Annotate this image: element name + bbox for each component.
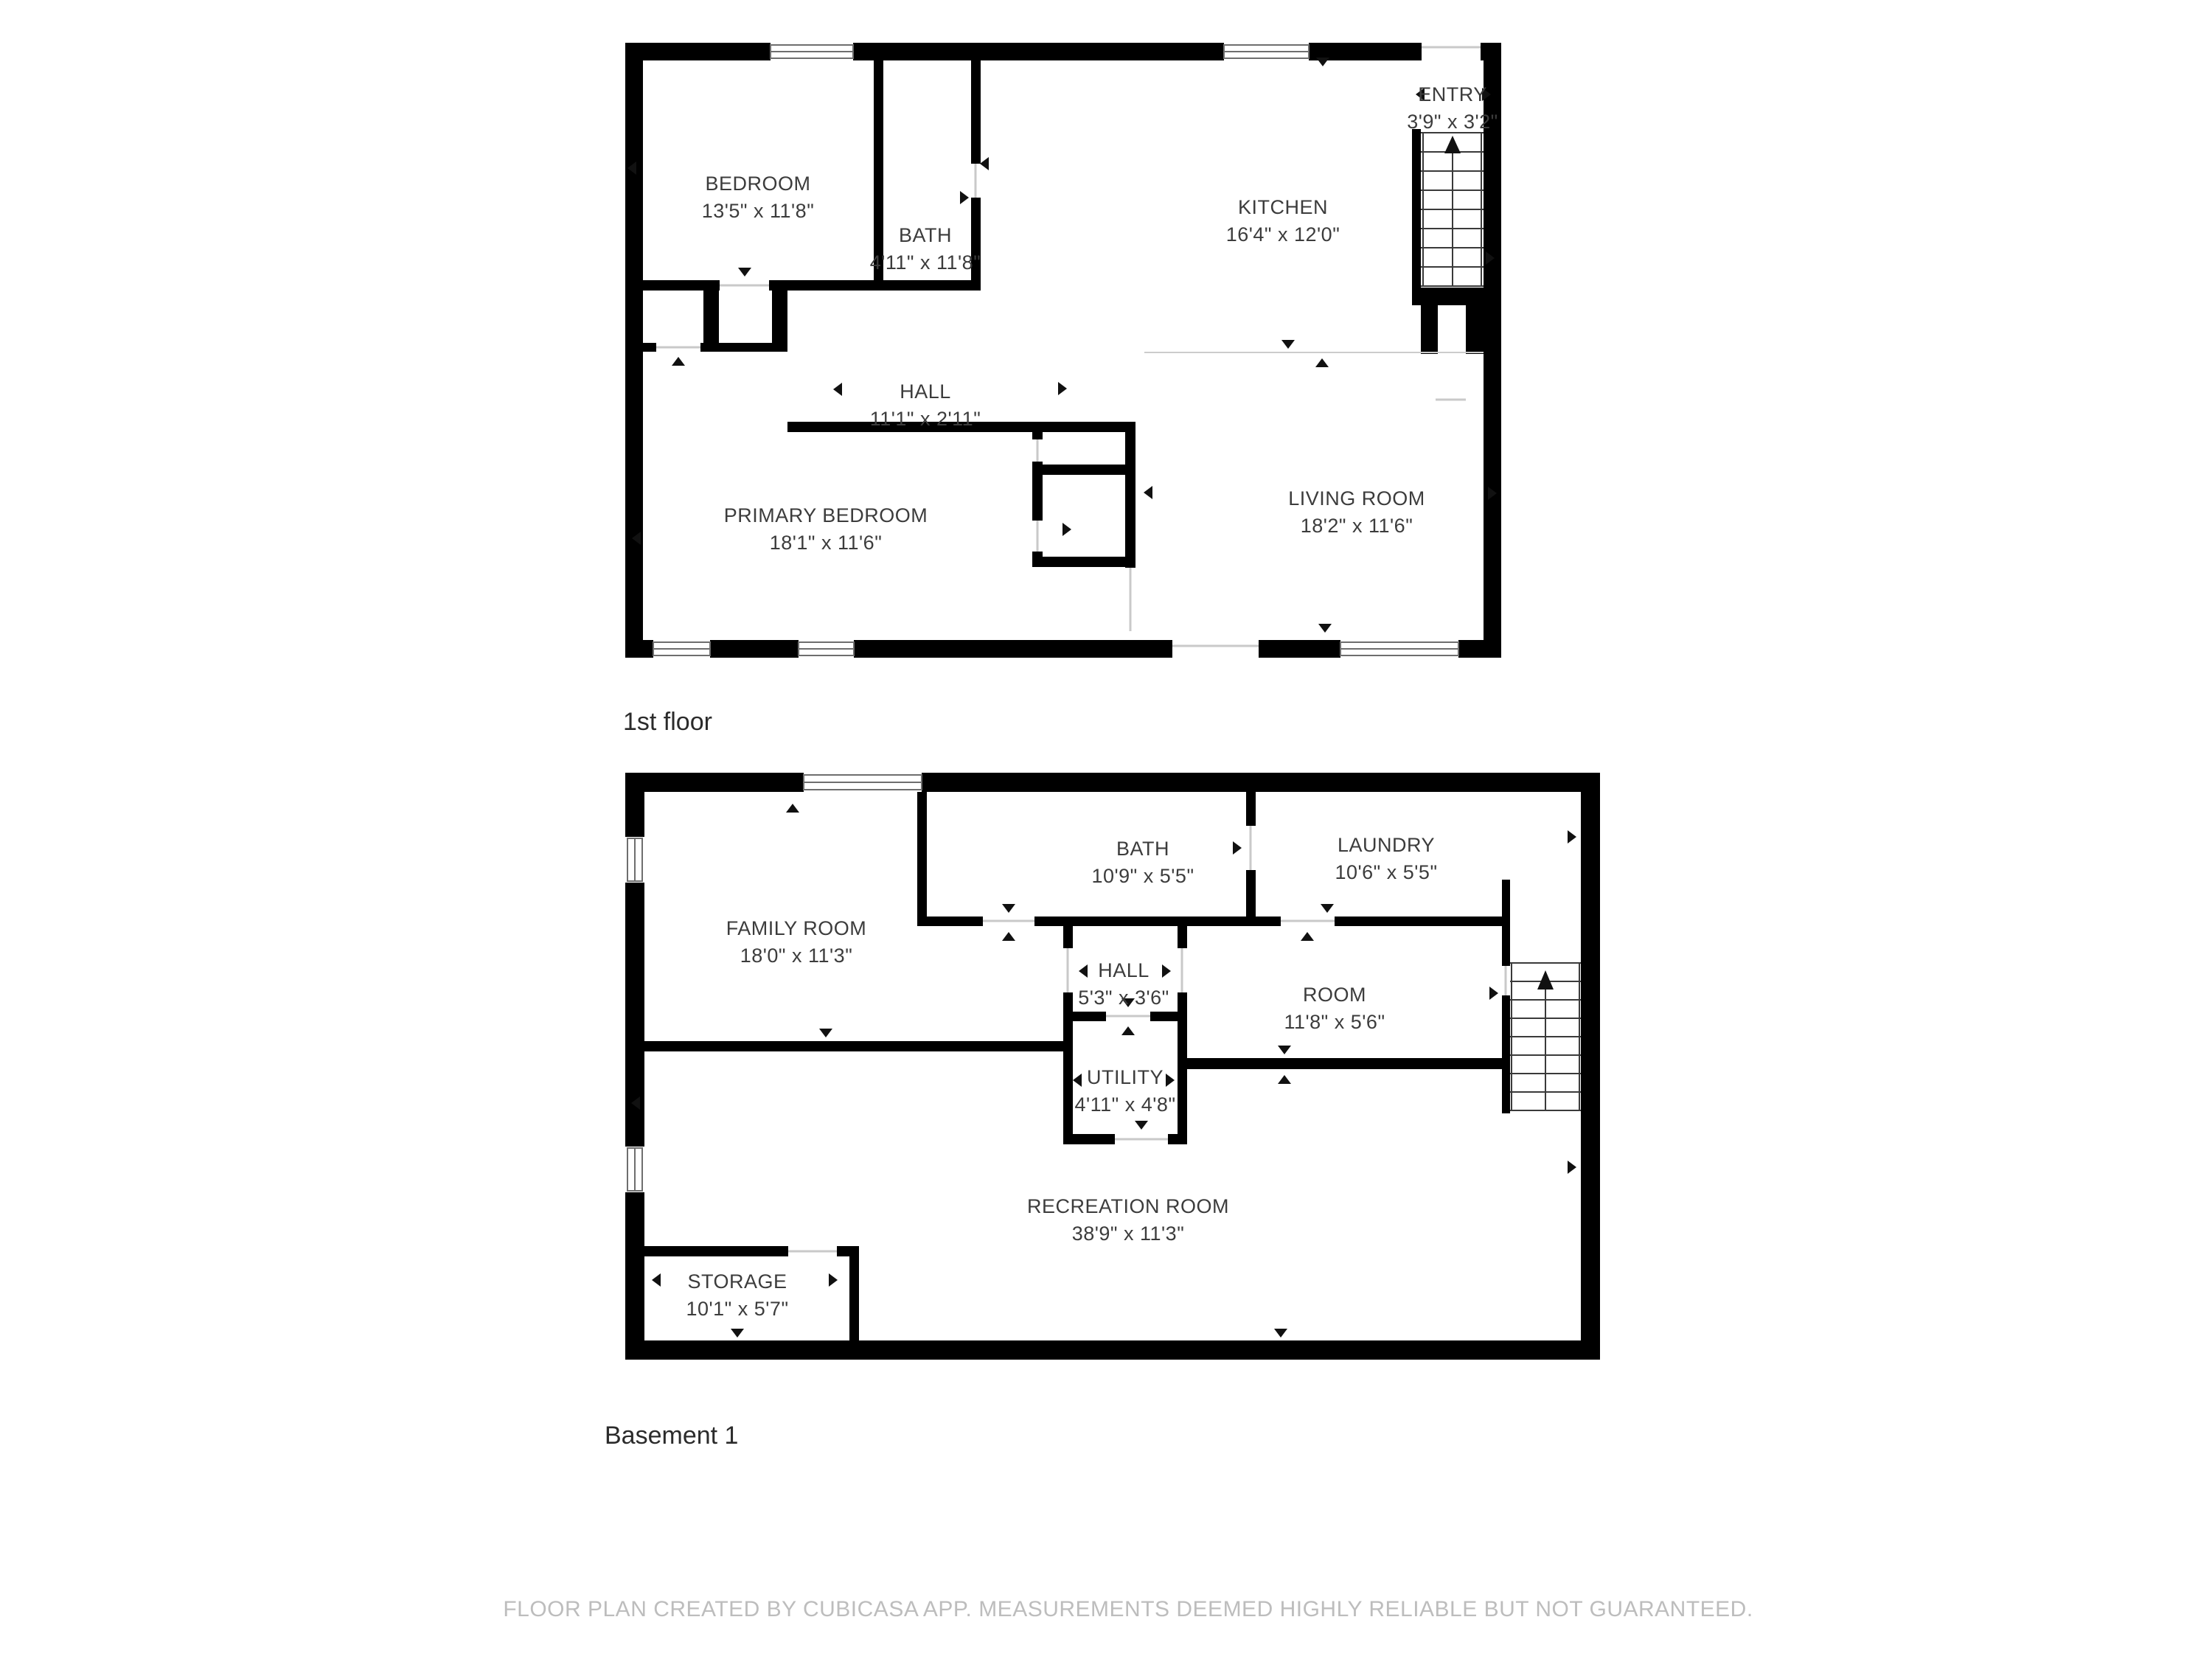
first-floor-label: 1st floor: [623, 708, 712, 736]
room-dims-utility: 4'11" x 4'8": [1074, 1093, 1175, 1116]
room-dims-living-room: 18'2" x 11'6": [1301, 515, 1413, 537]
room-label-basement-bath: BATH: [1116, 838, 1169, 860]
room-dims-storage: 10'1" x 5'7": [686, 1298, 788, 1320]
basement-stairs: [1510, 963, 1581, 1110]
room-dims-basement-bath: 10'9" x 5'5": [1091, 865, 1194, 887]
room-dims-recreation-room: 38'9" x 11'3": [1072, 1222, 1185, 1245]
room-label-entry: ENTRY: [1418, 83, 1487, 105]
basement-openings: [788, 826, 1506, 1251]
door-arrow-icon: [738, 268, 751, 276]
door-arrow-icon: [1318, 624, 1332, 633]
door-arrow-icon: [652, 1273, 661, 1287]
door-arrow-icon: [1166, 1074, 1175, 1087]
room-label-laundry: LAUNDRY: [1338, 834, 1435, 856]
room-label-recreation-room: RECREATION ROOM: [1027, 1195, 1229, 1217]
door-arrow-icon: [1002, 904, 1015, 913]
door-arrow-icon: [786, 804, 799, 813]
door-arrow-icon: [1315, 358, 1329, 367]
room-label-room: ROOM: [1303, 984, 1366, 1006]
door-arrow-icon: [672, 357, 685, 366]
first-floor-plan: BEDROOM 13'5" x 11'8" BATH 4'11" x 11'8"…: [625, 43, 1501, 658]
door-arrow-icon: [819, 1029, 832, 1037]
door-arrow-icon: [1079, 964, 1088, 978]
basement-floor-label: Basement 1: [605, 1422, 738, 1450]
door-arrow-icon: [1144, 486, 1152, 499]
door-arrow-icon: [1062, 523, 1071, 536]
first-floor-stairs: [1421, 133, 1484, 286]
room-label-primary-bedroom: PRIMARY BEDROOM: [724, 504, 928, 526]
room-dims-entry: 3'9" x 3'2": [1407, 111, 1498, 133]
door-arrow-icon: [833, 383, 842, 396]
door-arrow-icon: [1121, 1026, 1135, 1035]
door-arrow-icon: [1278, 1075, 1291, 1084]
room-dims-room: 11'8" x 5'6": [1284, 1011, 1385, 1033]
door-arrow-icon: [1135, 1121, 1148, 1130]
room-dims-primary-bedroom: 18'1" x 11'6": [770, 532, 883, 554]
room-dims-bedroom: 13'5" x 11'8": [702, 200, 815, 222]
room-label-storage: STORAGE: [687, 1270, 787, 1293]
door-arrow-icon: [1568, 830, 1576, 844]
basement-plan: FAMILY ROOM 18'0" x 11'3" BATH 10'9" x 5…: [625, 773, 1600, 1360]
door-arrow-icon: [980, 157, 989, 170]
door-arrow-icon: [1073, 1074, 1082, 1087]
room-dims-bath: 4'11" x 11'8": [870, 251, 981, 274]
stairs-up-arrow-icon: [1537, 970, 1554, 990]
room-label-kitchen: KITCHEN: [1238, 196, 1328, 218]
door-arrow-icon: [1568, 1161, 1576, 1174]
first-floor-room-labels: BEDROOM 13'5" x 11'8" BATH 4'11" x 11'8"…: [702, 83, 1498, 554]
room-label-hall: HALL: [900, 380, 951, 403]
basement-windows: [625, 773, 922, 1192]
stairs-up-arrow-icon: [1444, 136, 1461, 153]
door-arrow-icon: [1316, 58, 1329, 66]
floor-plan-canvas: BEDROOM 13'5" x 11'8" BATH 4'11" x 11'8"…: [0, 0, 2212, 1659]
room-dims-kitchen: 16'4" x 12'0": [1226, 223, 1340, 246]
room-label-utility: UTILITY: [1087, 1066, 1164, 1088]
room-label-bath: BATH: [899, 224, 952, 246]
door-arrow-icon: [1002, 932, 1015, 941]
door-arrow-icon: [1321, 904, 1334, 913]
door-arrow-icon: [1233, 841, 1242, 855]
door-arrow-icon: [1489, 987, 1498, 1000]
door-arrow-icon: [1274, 1329, 1287, 1338]
room-label-basement-hall: HALL: [1098, 959, 1150, 981]
door-arrow-icon: [829, 1273, 838, 1287]
door-arrow-icon: [1301, 932, 1314, 941]
door-arrow-icon: [1162, 964, 1171, 978]
room-dims-hall: 11'1" x 2'11": [870, 408, 981, 430]
first-floor-walls: [625, 43, 1501, 658]
door-arrow-icon: [731, 1329, 744, 1338]
footer-disclaimer: FLOOR PLAN CREATED BY CUBICASA APP. MEAS…: [503, 1597, 1753, 1621]
door-arrow-icon: [1278, 1046, 1291, 1054]
room-dims-family-room: 18'0" x 11'3": [740, 945, 853, 967]
door-arrow-icon: [1058, 382, 1067, 395]
room-dims-laundry: 10'6" x 5'5": [1335, 861, 1437, 883]
floor-plan-page: BEDROOM 13'5" x 11'8" BATH 4'11" x 11'8"…: [0, 0, 2212, 1659]
room-label-family-room: FAMILY ROOM: [726, 917, 867, 939]
room-label-living-room: LIVING ROOM: [1288, 487, 1425, 509]
door-arrow-icon: [960, 191, 969, 204]
door-arrow-icon: [1281, 340, 1295, 349]
room-dims-basement-hall: 5'3" x 3'6": [1078, 987, 1169, 1009]
room-label-bedroom: BEDROOM: [705, 173, 810, 195]
